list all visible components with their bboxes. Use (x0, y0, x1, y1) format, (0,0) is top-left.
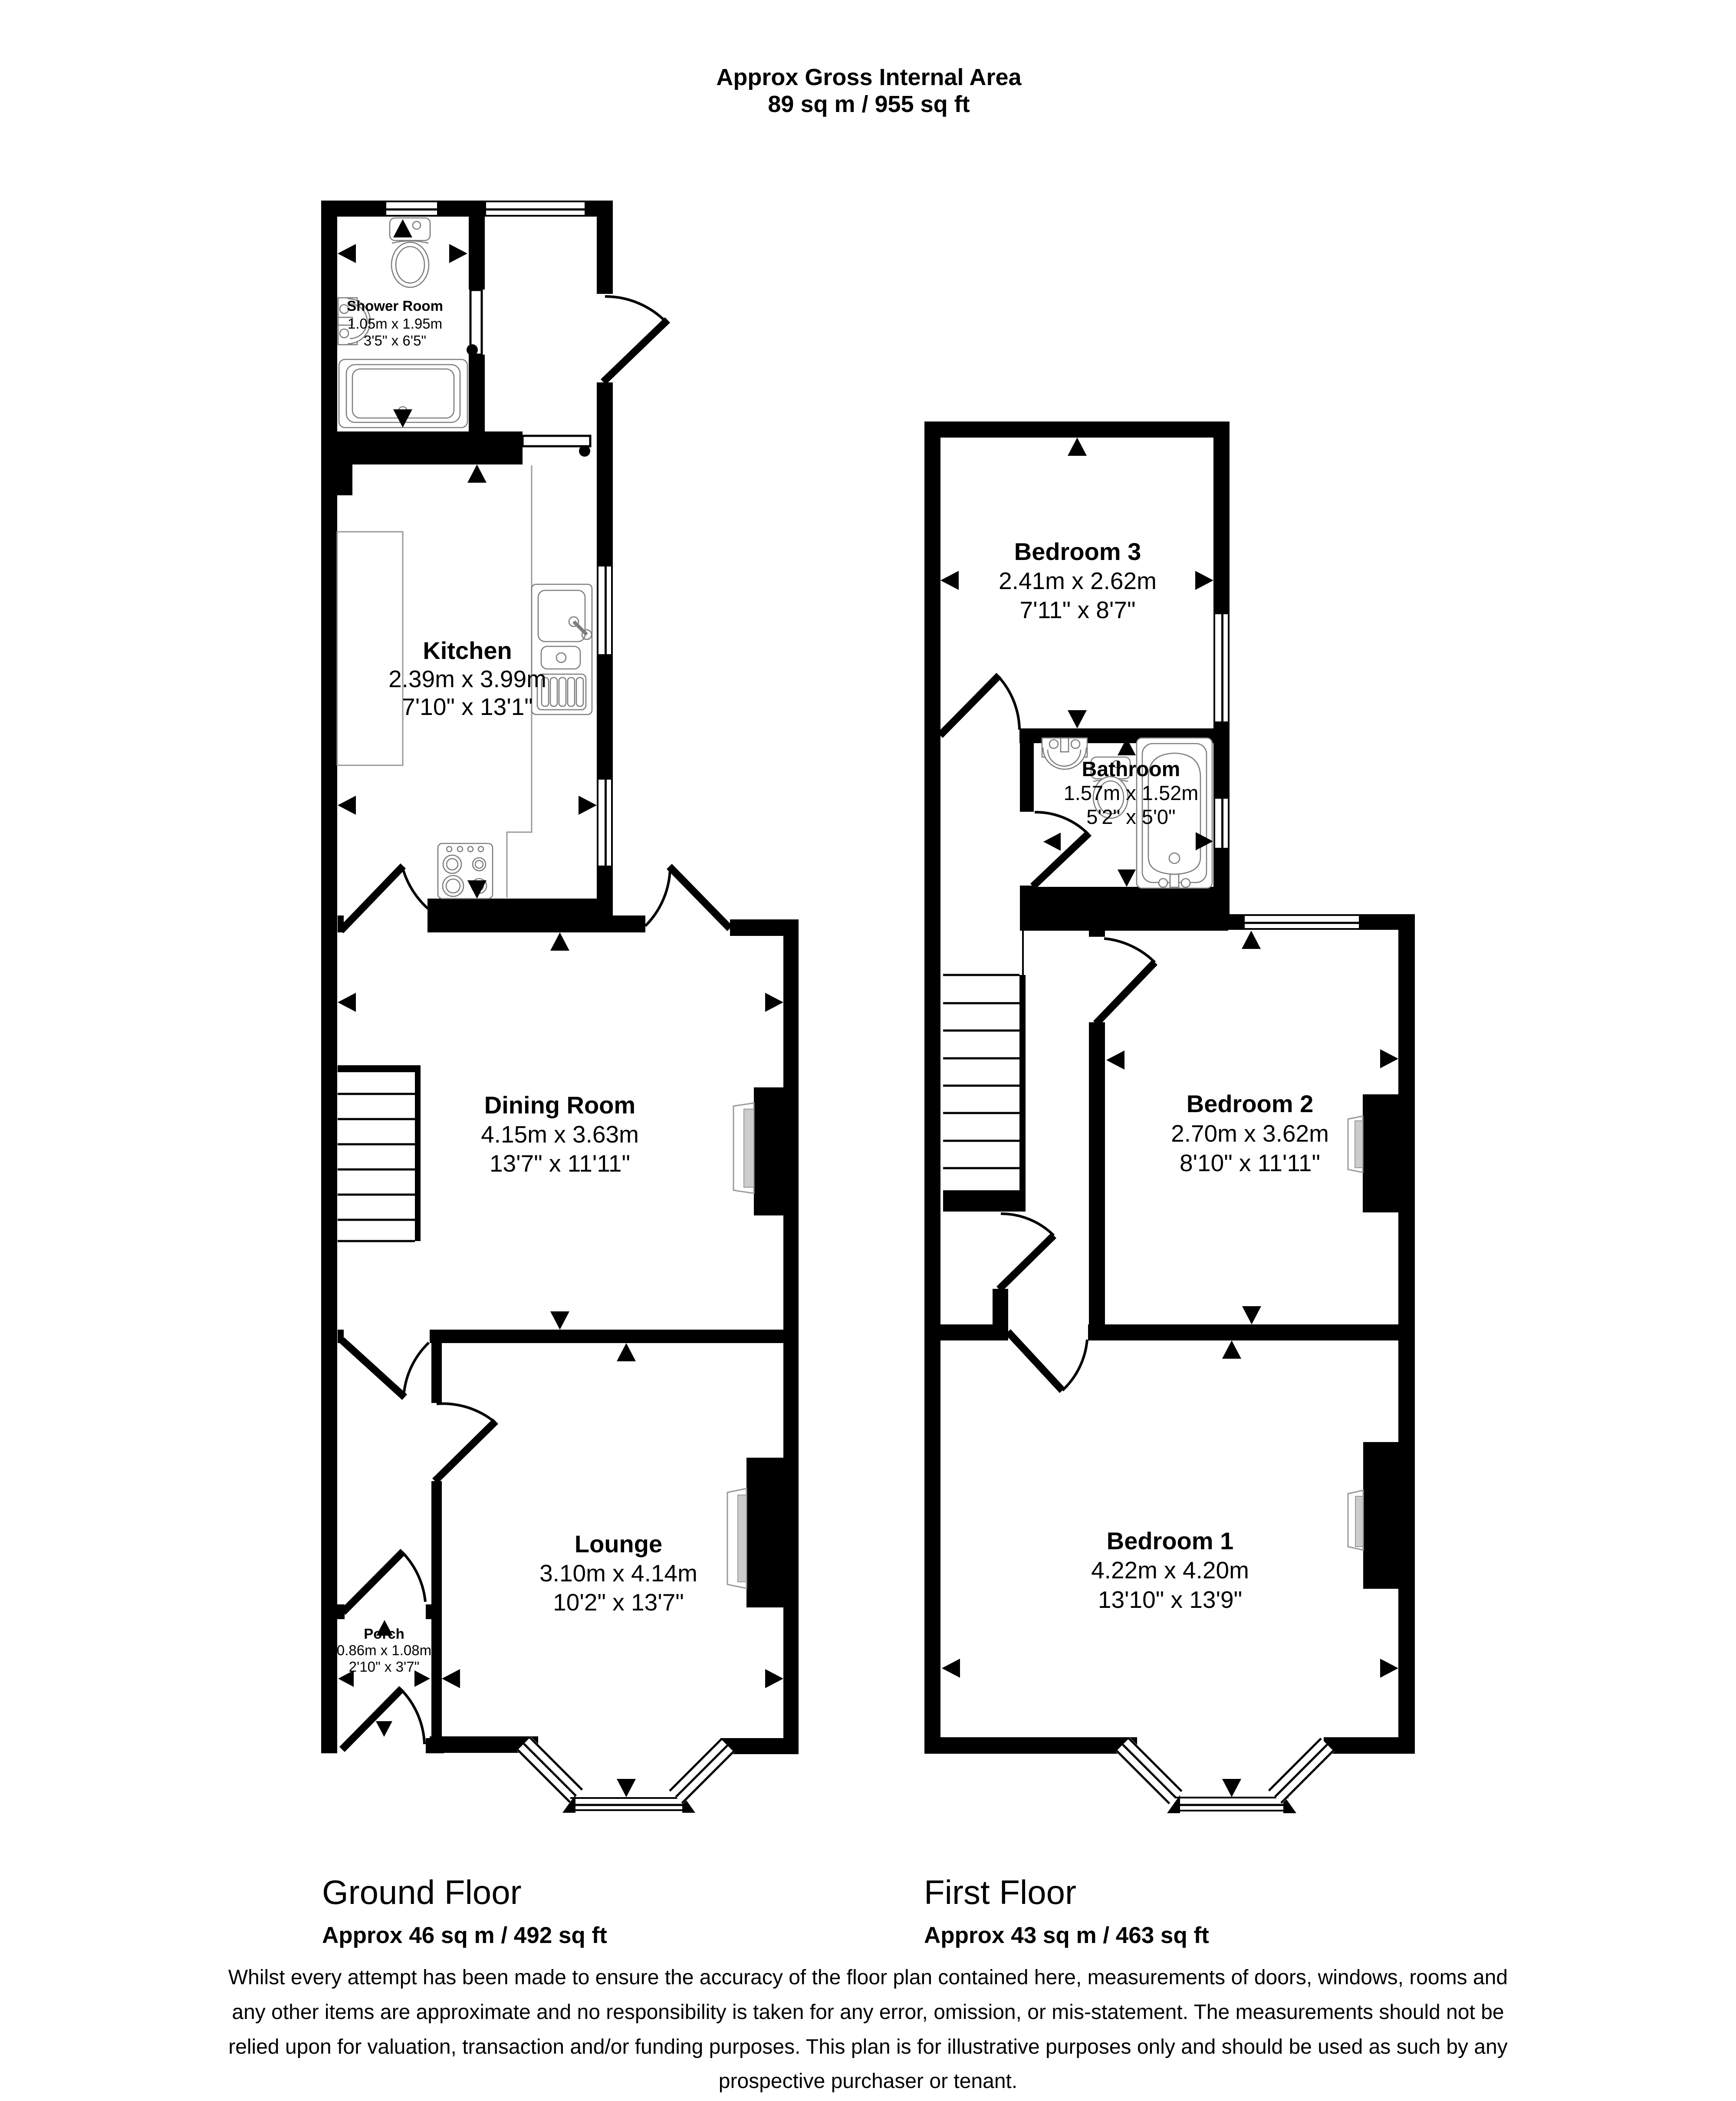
svg-text:10'2" x 13'7": 10'2" x 13'7" (553, 1589, 684, 1616)
svg-text:2.41m x 2.62m: 2.41m x 2.62m (999, 567, 1157, 594)
svg-text:Bedroom 3: Bedroom 3 (1014, 538, 1141, 565)
svg-text:7'10" x 13'1": 7'10" x 13'1" (402, 693, 533, 720)
svg-text:89 sq m / 955 sq ft: 89 sq m / 955 sq ft (768, 91, 970, 117)
svg-text:First Floor: First Floor (924, 1873, 1076, 1911)
svg-text:1.57m x 1.52m: 1.57m x 1.52m (1064, 781, 1199, 804)
svg-text:Approx Gross Internal Area: Approx Gross Internal Area (716, 64, 1022, 90)
svg-text:Approx 46 sq m / 492 sq ft: Approx 46 sq m / 492 sq ft (322, 1923, 607, 1948)
svg-text:2.70m x 3.62m: 2.70m x 3.62m (1171, 1120, 1329, 1147)
svg-text:Approx 43 sq m / 463 sq ft: Approx 43 sq m / 463 sq ft (924, 1923, 1209, 1948)
svg-text:any other items are approximat: any other items are approximate and no r… (232, 2001, 1504, 2024)
svg-text:4.15m x 3.63m: 4.15m x 3.63m (481, 1121, 639, 1148)
svg-text:3'5" x 6'5": 3'5" x 6'5" (364, 333, 426, 349)
svg-text:Shower Room: Shower Room (347, 298, 443, 314)
svg-text:2'10" x 3'7": 2'10" x 3'7" (349, 1659, 420, 1675)
svg-text:Lounge: Lounge (575, 1530, 662, 1558)
svg-text:relied upon for valuation, tra: relied upon for valuation, transaction a… (228, 2035, 1508, 2058)
svg-text:Bathroom: Bathroom (1082, 758, 1180, 781)
svg-text:Bedroom 2: Bedroom 2 (1187, 1090, 1314, 1117)
svg-text:13'10" x 13'9": 13'10" x 13'9" (1098, 1586, 1242, 1613)
svg-text:Kitchen: Kitchen (423, 637, 512, 664)
svg-text:13'7" x 11'11": 13'7" x 11'11" (490, 1150, 630, 1177)
svg-text:Dining Room: Dining Room (484, 1091, 635, 1119)
svg-text:8'10" x 11'11": 8'10" x 11'11" (1180, 1149, 1320, 1176)
svg-text:2.39m x 3.99m: 2.39m x 3.99m (388, 665, 546, 692)
svg-text:Bedroom 1: Bedroom 1 (1107, 1527, 1234, 1554)
svg-text:3.10m x 4.14m: 3.10m x 4.14m (539, 1560, 697, 1587)
svg-text:4.22m x 4.20m: 4.22m x 4.20m (1091, 1557, 1249, 1584)
svg-text:prospective purchaser or tenan: prospective purchaser or tenant. (719, 2070, 1017, 2093)
svg-text:Whilst every attempt has been: Whilst every attempt has been made to en… (228, 1966, 1508, 1989)
svg-text:5'2" x 5'0": 5'2" x 5'0" (1086, 805, 1176, 828)
svg-text:7'11" x 8'7": 7'11" x 8'7" (1020, 596, 1136, 623)
svg-text:1.05m x 1.95m: 1.05m x 1.95m (348, 316, 442, 332)
svg-text:Porch: Porch (364, 1626, 404, 1642)
svg-text:Ground Floor: Ground Floor (322, 1873, 522, 1911)
svg-text:0.86m x 1.08m: 0.86m x 1.08m (337, 1642, 431, 1658)
